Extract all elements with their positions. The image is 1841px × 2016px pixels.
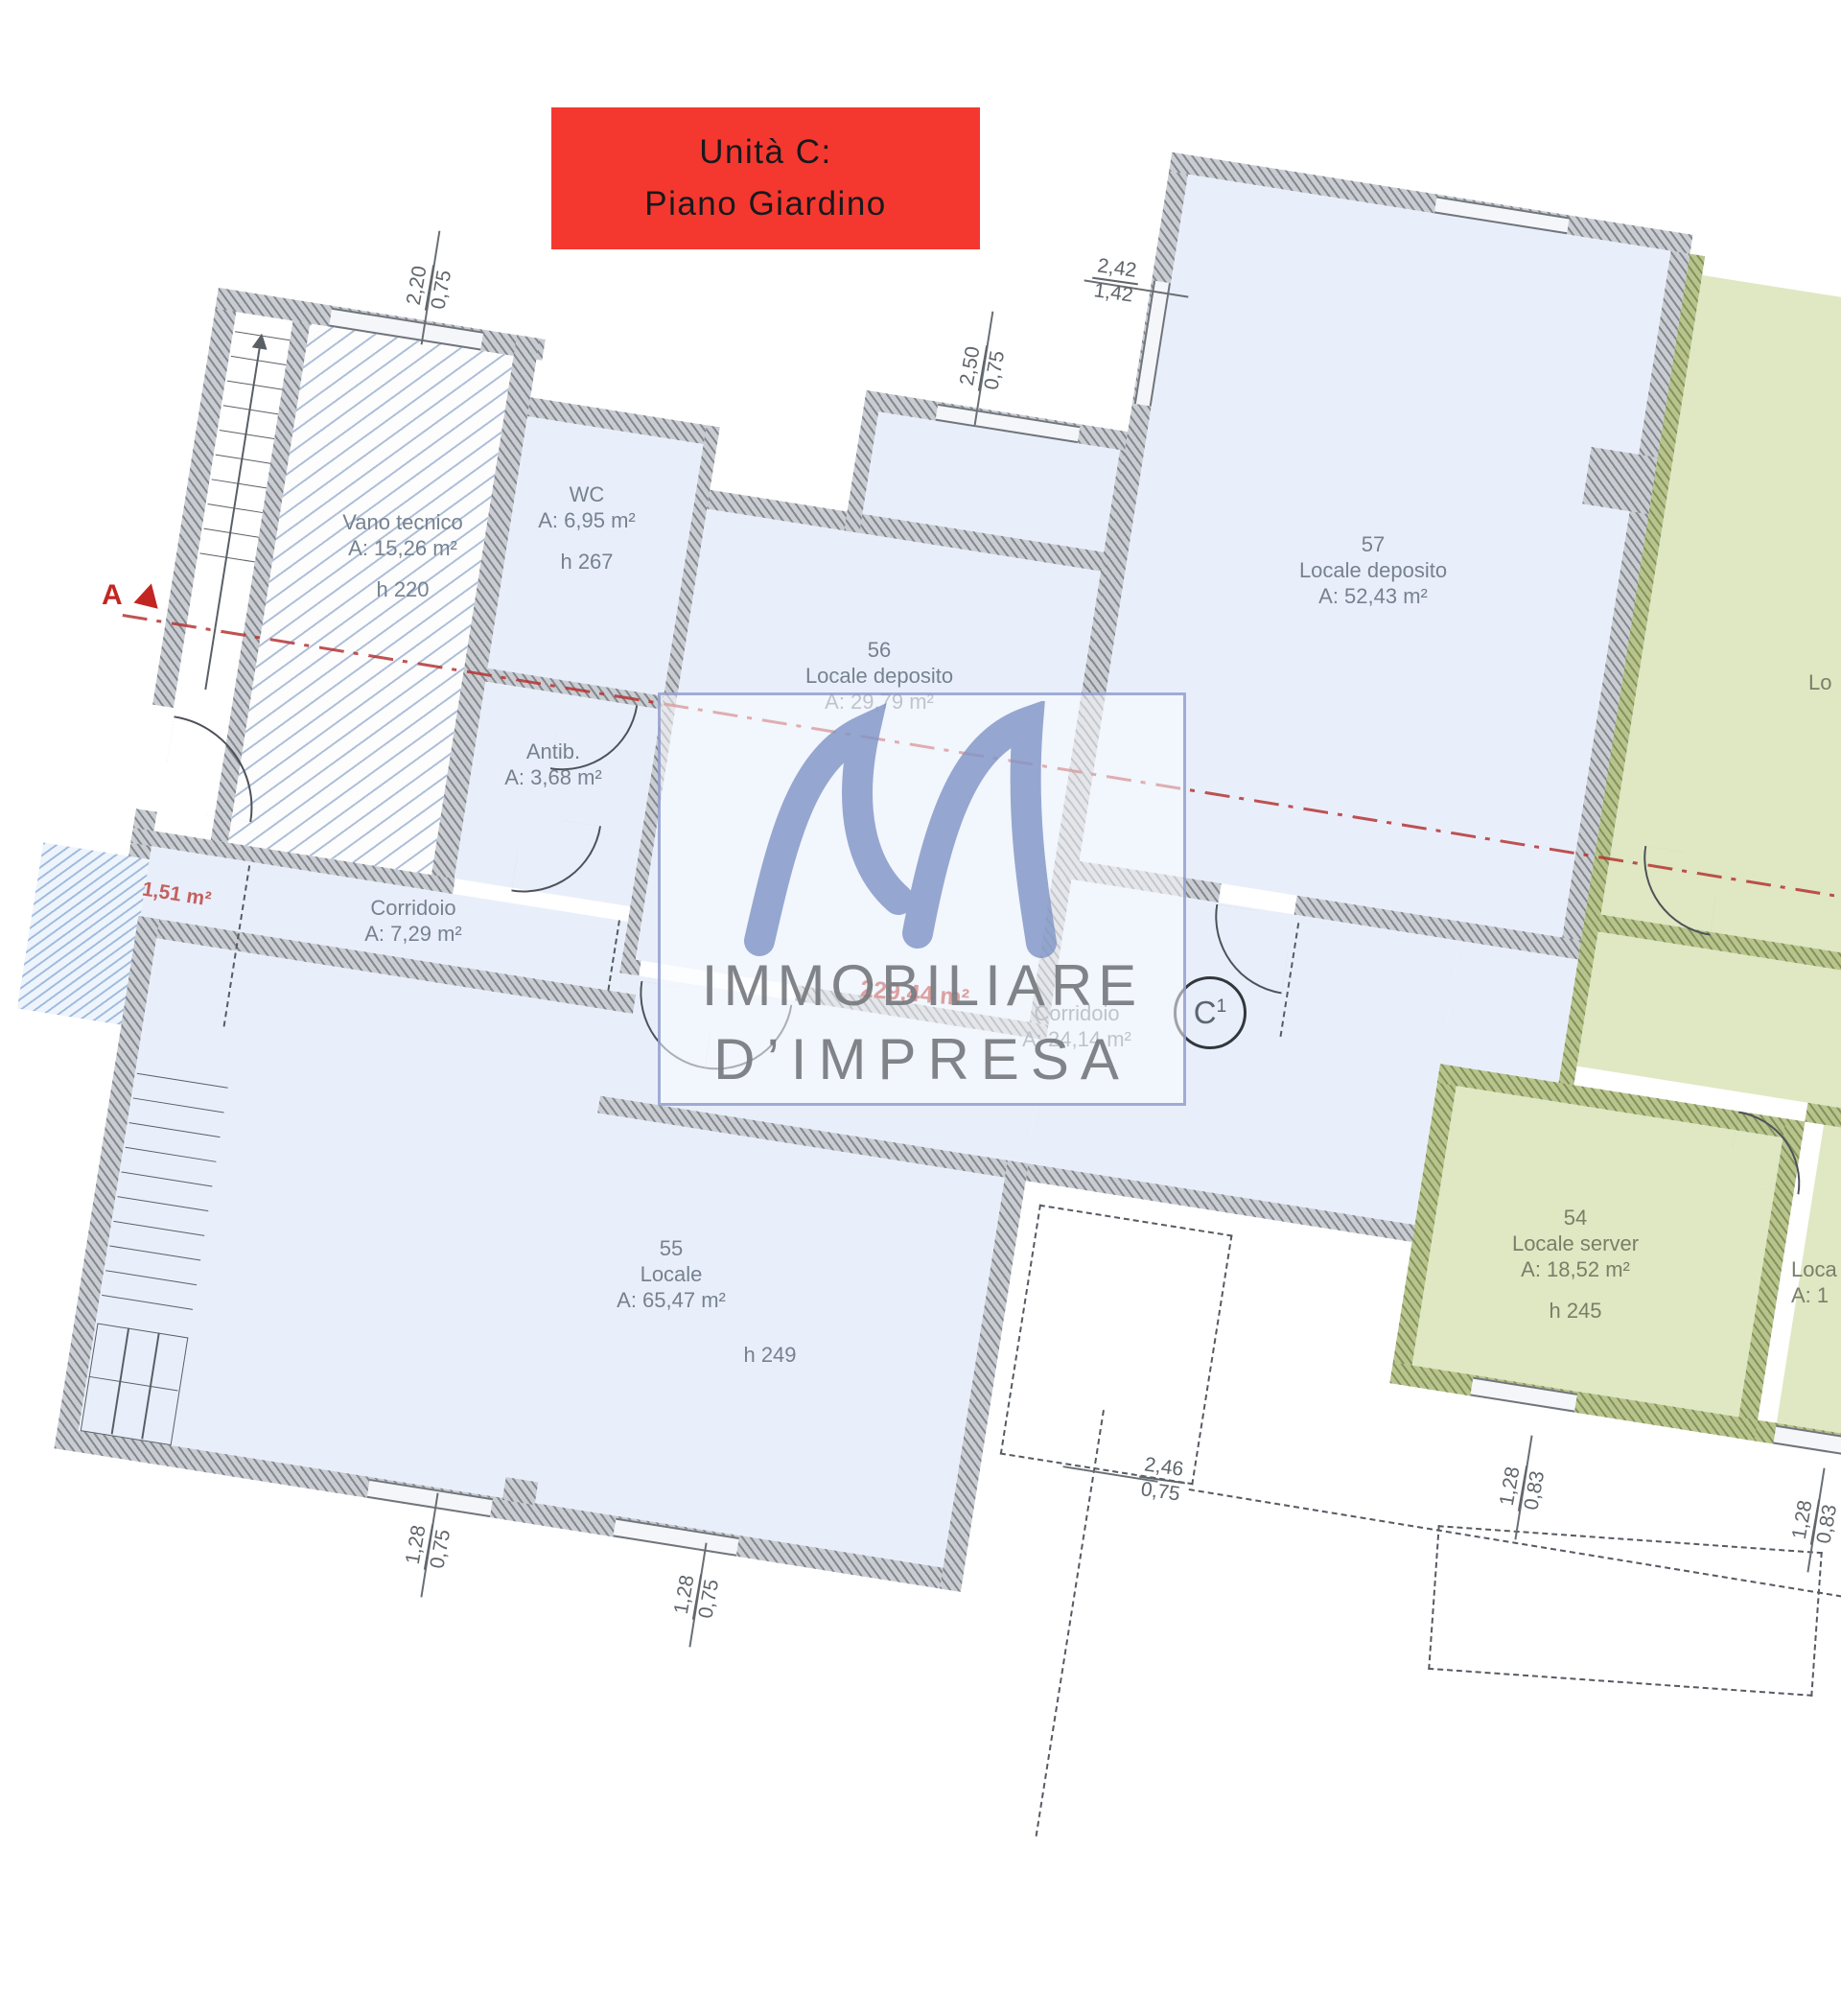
watermark-logo-m-icon	[721, 701, 1124, 958]
dashed-outline-rect	[1428, 1525, 1823, 1697]
dimension: 1,280,75	[670, 1570, 724, 1624]
room-label-antibagno: Antib. A: 3,68 m²	[457, 738, 649, 790]
dimension: 2,200,75	[403, 261, 456, 315]
room-name: Locale deposito	[774, 663, 985, 689]
stair-arrow-head	[252, 332, 269, 349]
wall	[502, 1477, 538, 1505]
section-marker-letter: A	[102, 579, 123, 612]
room-name: Loca	[1791, 1256, 1841, 1282]
patio-dashed-outline	[1000, 1205, 1233, 1486]
wall	[619, 957, 641, 975]
room-name: Locale server	[1470, 1231, 1681, 1256]
dim-b: 0,75	[428, 269, 455, 311]
room-id: 55	[566, 1235, 777, 1261]
room-name: Corridoio	[308, 895, 519, 921]
title-banner: Unità C: Piano Giardino	[551, 107, 980, 249]
room-id: 54	[1470, 1205, 1681, 1231]
wall	[1582, 447, 1658, 514]
room-label-green-north-clipped: Lo	[1808, 669, 1841, 695]
section-marker-triangle	[133, 580, 163, 609]
room-name: Vano tecnico	[297, 509, 508, 535]
room-id: 56	[774, 637, 985, 663]
title-line2: Piano Giardino	[644, 178, 887, 230]
corridor-east-ext	[1440, 941, 1578, 1083]
room-area: A: 3,68 m²	[457, 764, 649, 790]
room-height: h 245	[1470, 1298, 1681, 1324]
room-id: 57	[1268, 531, 1479, 557]
room-label-vano-tecnico: Vano tecnico A: 15,26 m² h 220	[297, 509, 508, 602]
room-name: Locale	[566, 1261, 777, 1287]
room-height: h 267	[491, 549, 683, 574]
room-name: Lo	[1808, 669, 1841, 695]
unit-badge-sup: 1	[1217, 996, 1227, 1018]
dimension: 1,280,83	[1496, 1462, 1550, 1515]
dimension: 1,280,75	[402, 1520, 455, 1574]
watermark-line2: D’IMPRESA	[713, 1026, 1130, 1092]
room-label-wc: WC A: 6,95 m² h 267	[491, 481, 683, 574]
room-height: h 249	[712, 1342, 827, 1368]
watermark-line1: IMMOBILIARE	[702, 952, 1142, 1019]
room-55-height: h 249	[712, 1342, 827, 1368]
dimension: 2,421,42	[1089, 255, 1141, 307]
dim-b: 0,75	[981, 349, 1009, 391]
room-name: WC	[491, 481, 683, 507]
floor-plan	[0, 288, 1841, 2016]
room-area: A: 52,43 m²	[1268, 583, 1479, 609]
room-area: A: 18,52 m²	[1470, 1256, 1681, 1282]
room-area: A: 1	[1791, 1282, 1841, 1308]
room-area: A: 65,47 m²	[566, 1287, 777, 1313]
room-name: Locale deposito	[1268, 557, 1479, 583]
wall	[152, 288, 240, 708]
dimension: 1,280,83	[1788, 1495, 1841, 1549]
room-height: h 220	[297, 576, 508, 602]
room-label-54: 54 Locale server A: 18,52 m² h 245	[1470, 1205, 1681, 1324]
dimension: 2,460,75	[1136, 1454, 1188, 1506]
room-label-57: 57 Locale deposito A: 52,43 m²	[1268, 531, 1479, 609]
room-label-55: 55 Locale A: 65,47 m²	[566, 1235, 777, 1313]
dimension: 2,500,75	[956, 341, 1010, 395]
unit-badge-letter: C	[1194, 995, 1217, 1031]
room-label-corridoio-west: Corridoio A: 7,29 m²	[308, 895, 519, 947]
room-area: A: 7,29 m²	[308, 921, 519, 947]
title-line1: Unità C:	[699, 127, 831, 178]
room-area: A: 6,95 m²	[491, 507, 683, 533]
watermark: IMMOBILIARE D’IMPRESA	[658, 692, 1186, 1106]
dim-b: 1,42	[1092, 280, 1134, 306]
room-name: Antib.	[457, 738, 649, 764]
room-label-green-south-clipped: Loca A: 1	[1791, 1256, 1841, 1308]
room-area: A: 15,26 m²	[297, 535, 508, 561]
